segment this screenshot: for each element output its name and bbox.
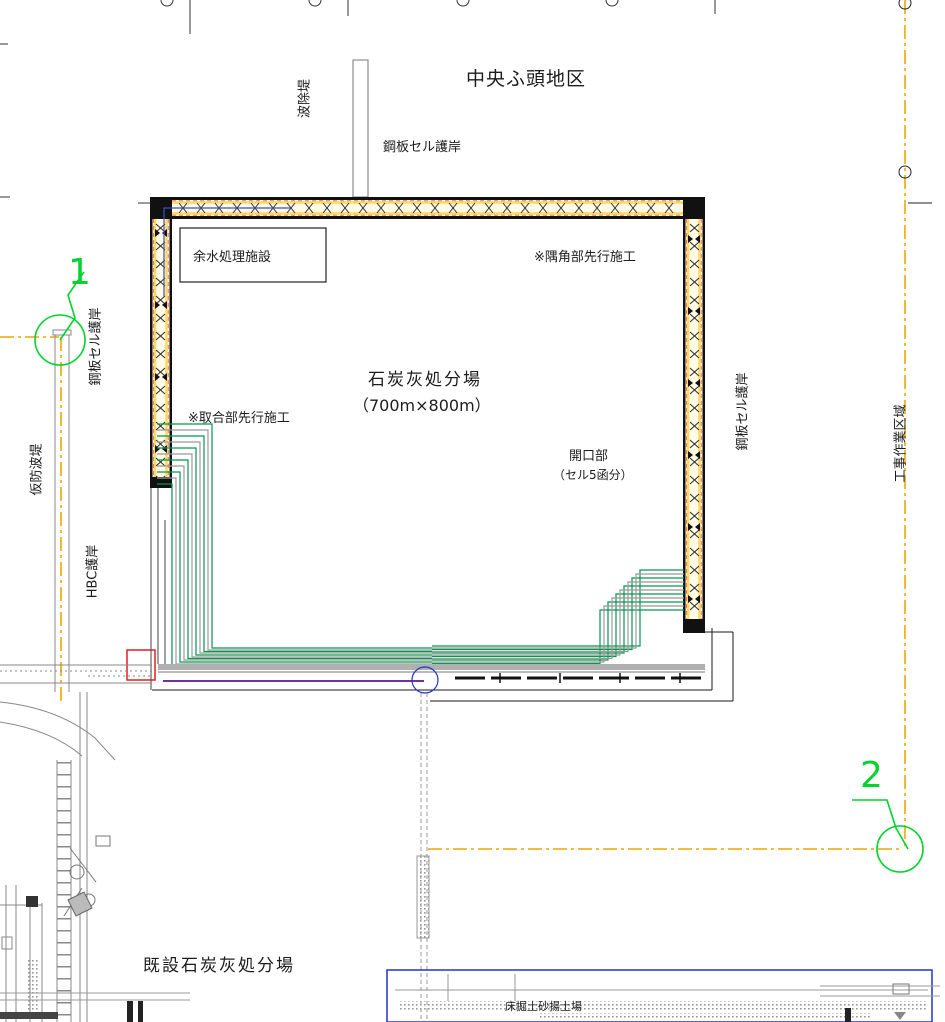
survey-line-markers	[899, 0, 932, 203]
dredge-yard-label: 床掘土砂揚土場	[505, 998, 582, 1014]
steel-cell-revetment-left-label: 鋼板セル護岸	[85, 287, 104, 407]
district-title: 中央ふ頭地区	[466, 64, 586, 91]
opening-label-line2: （セル5函分）	[553, 466, 633, 483]
joint-priority-note: ※取合部先行施工	[188, 407, 290, 426]
top-reference-marks	[0, 0, 715, 203]
surplus-water-facility-label: 余水処理施設	[193, 246, 271, 265]
opening-label-line1: 開口部	[569, 445, 608, 464]
wave-barrier-structure	[353, 60, 368, 197]
marker-1-number: 1	[68, 255, 91, 291]
dredge-yard-area	[127, 970, 940, 1022]
temp-breakwater-label: 仮防波堤	[26, 410, 45, 530]
site-dimensions-label: （700m×800m）	[353, 392, 491, 416]
steel-cell-revetment-top-label: 鋼板セル護岸	[383, 136, 461, 155]
cad-linework	[0, 0, 945, 1022]
hbc-revetment-label: HBC護岸	[82, 512, 101, 632]
cell-revetment-walls	[150, 197, 705, 690]
drawing-canvas: 中央ふ頭地区 鋼板セル護岸 波除堤 余水処理施設 ※隅角部先行施工 石炭灰処分場…	[0, 0, 945, 1022]
existing-site-label: 既設石炭灰処分場	[143, 951, 295, 976]
site-name-label: 石炭灰処分場	[368, 365, 482, 390]
existing-site-boundary	[417, 693, 429, 1022]
bottom-revetment	[152, 628, 733, 701]
wave-barrier-label: 波除堤	[294, 39, 313, 159]
corner-priority-note: ※隅角部先行施工	[534, 246, 636, 265]
survey-marker-2	[852, 800, 923, 872]
survey-lines	[0, 0, 905, 849]
marker-2-number: 2	[860, 758, 883, 794]
steel-cell-revetment-right-label: 鋼板セル護岸	[732, 352, 751, 472]
work-area-label: 工事作業区域	[890, 384, 909, 504]
